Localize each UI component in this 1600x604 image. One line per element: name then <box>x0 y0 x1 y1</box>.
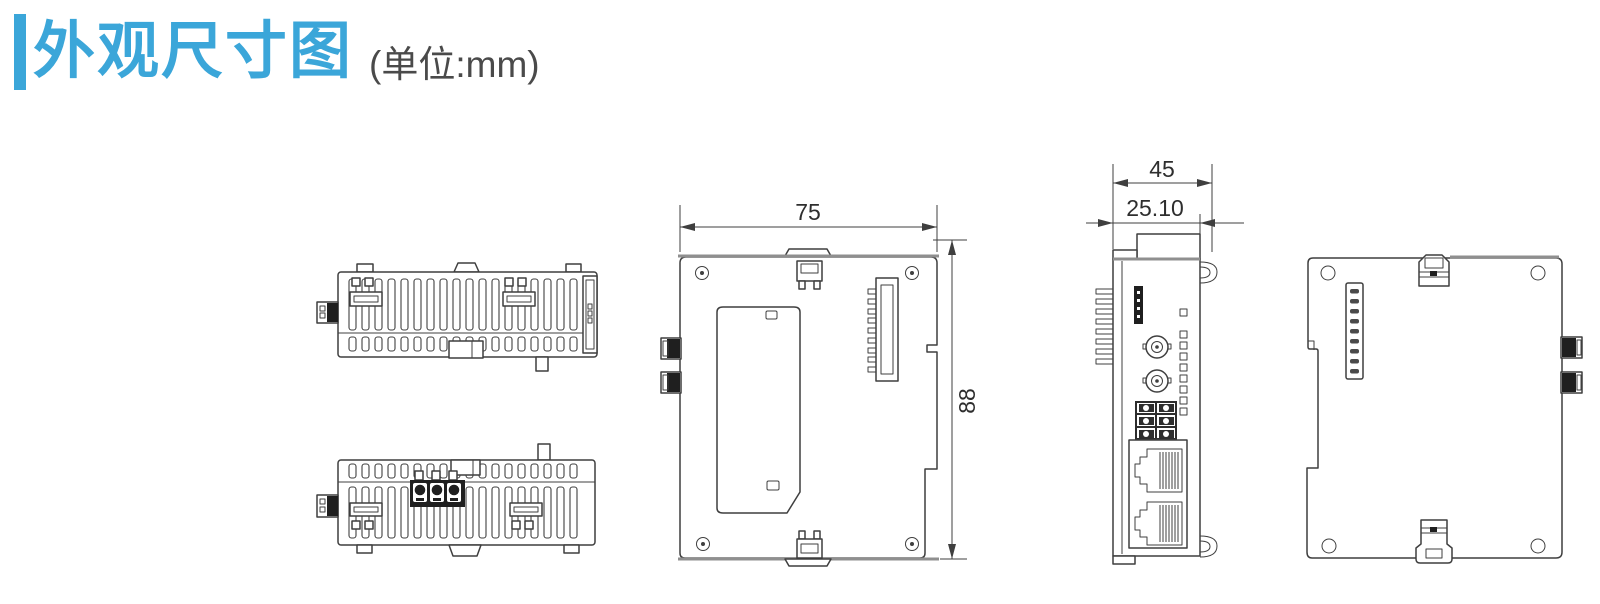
side-top-block <box>1137 234 1200 259</box>
din-clip <box>1416 520 1452 563</box>
mounting-tab <box>564 545 579 553</box>
mounting-tab <box>538 444 550 460</box>
backplane-connector <box>1346 283 1363 379</box>
bus-connector <box>317 495 338 517</box>
top-view <box>317 263 597 371</box>
dim-depth-label: 45 <box>1149 156 1175 182</box>
extension-slot <box>583 276 597 353</box>
mounting-tab <box>449 545 481 556</box>
dimension-width: 75 <box>680 199 937 252</box>
bottom-view <box>317 444 595 556</box>
mounting-tab <box>357 545 372 553</box>
mounting-tab <box>454 263 479 272</box>
foot-tab <box>1113 556 1135 564</box>
terminal-block <box>1136 402 1176 439</box>
power-terminal-block <box>410 471 465 507</box>
din-clip <box>1419 255 1449 286</box>
mounting-tab <box>566 264 581 272</box>
back-view <box>1307 255 1582 563</box>
locking-tabs <box>1561 337 1582 393</box>
dim-height-label: 88 <box>954 388 980 414</box>
dimension-drawing: 75 88 <box>0 0 1600 604</box>
pin-header <box>1134 286 1143 324</box>
rj45-ports <box>1129 440 1187 548</box>
nameplate-panel <box>717 307 800 513</box>
dim-width-label: 75 <box>795 199 821 225</box>
mounting-tab <box>357 264 373 272</box>
drawing-canvas: 外观尺寸图 (单位:mm) <box>0 0 1600 604</box>
din-hooks <box>1200 262 1217 557</box>
locking-tabs <box>661 338 681 393</box>
bus-fins <box>1096 289 1113 364</box>
front-view: 75 88 <box>661 199 980 566</box>
bus-connector <box>317 302 338 323</box>
dimension-height: 88 <box>933 240 980 559</box>
dim-front-depth-label: 25.10 <box>1126 195 1184 221</box>
side-view: 45 25.10 <box>1086 156 1244 564</box>
